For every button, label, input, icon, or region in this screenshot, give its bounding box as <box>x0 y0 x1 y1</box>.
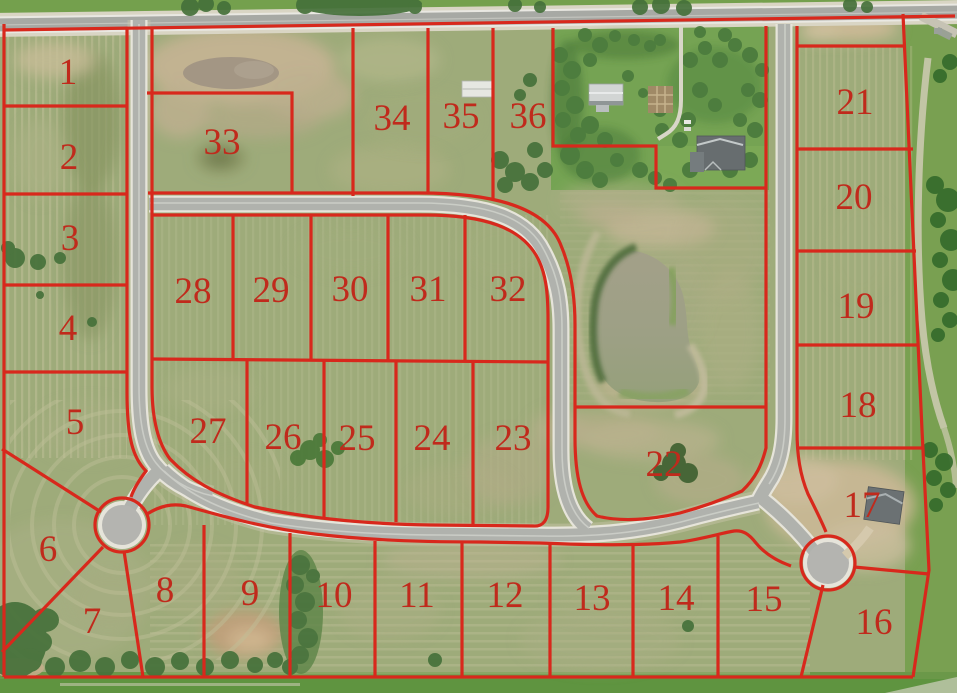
svg-text:7: 7 <box>83 601 102 642</box>
svg-text:15: 15 <box>746 579 783 620</box>
svg-text:12: 12 <box>487 575 524 616</box>
svg-text:5: 5 <box>66 402 85 443</box>
svg-text:24: 24 <box>414 418 451 459</box>
svg-text:30: 30 <box>332 269 369 310</box>
svg-text:8: 8 <box>156 570 175 611</box>
svg-text:6: 6 <box>39 529 58 570</box>
svg-text:26: 26 <box>265 417 302 458</box>
svg-text:28: 28 <box>175 271 212 312</box>
svg-text:32: 32 <box>490 269 527 310</box>
svg-text:14: 14 <box>658 578 695 619</box>
svg-text:22: 22 <box>646 444 683 485</box>
svg-text:34: 34 <box>374 98 411 139</box>
svg-text:19: 19 <box>838 286 875 327</box>
svg-text:11: 11 <box>399 575 435 616</box>
svg-text:1: 1 <box>59 52 78 93</box>
svg-text:9: 9 <box>241 573 260 614</box>
svg-text:27: 27 <box>190 411 227 452</box>
svg-text:2: 2 <box>60 137 79 178</box>
svg-text:13: 13 <box>574 578 611 619</box>
svg-text:16: 16 <box>856 602 893 643</box>
svg-text:17: 17 <box>844 485 881 526</box>
svg-text:21: 21 <box>837 82 874 123</box>
svg-text:10: 10 <box>316 575 353 616</box>
svg-text:33: 33 <box>204 122 241 163</box>
svg-text:23: 23 <box>495 418 532 459</box>
svg-text:35: 35 <box>443 96 480 137</box>
svg-text:25: 25 <box>339 418 376 459</box>
svg-text:31: 31 <box>410 269 447 310</box>
svg-text:3: 3 <box>61 218 80 259</box>
svg-text:18: 18 <box>840 385 877 426</box>
svg-text:36: 36 <box>510 96 547 137</box>
svg-text:4: 4 <box>59 308 78 349</box>
svg-text:29: 29 <box>253 270 290 311</box>
svg-text:20: 20 <box>836 177 873 218</box>
